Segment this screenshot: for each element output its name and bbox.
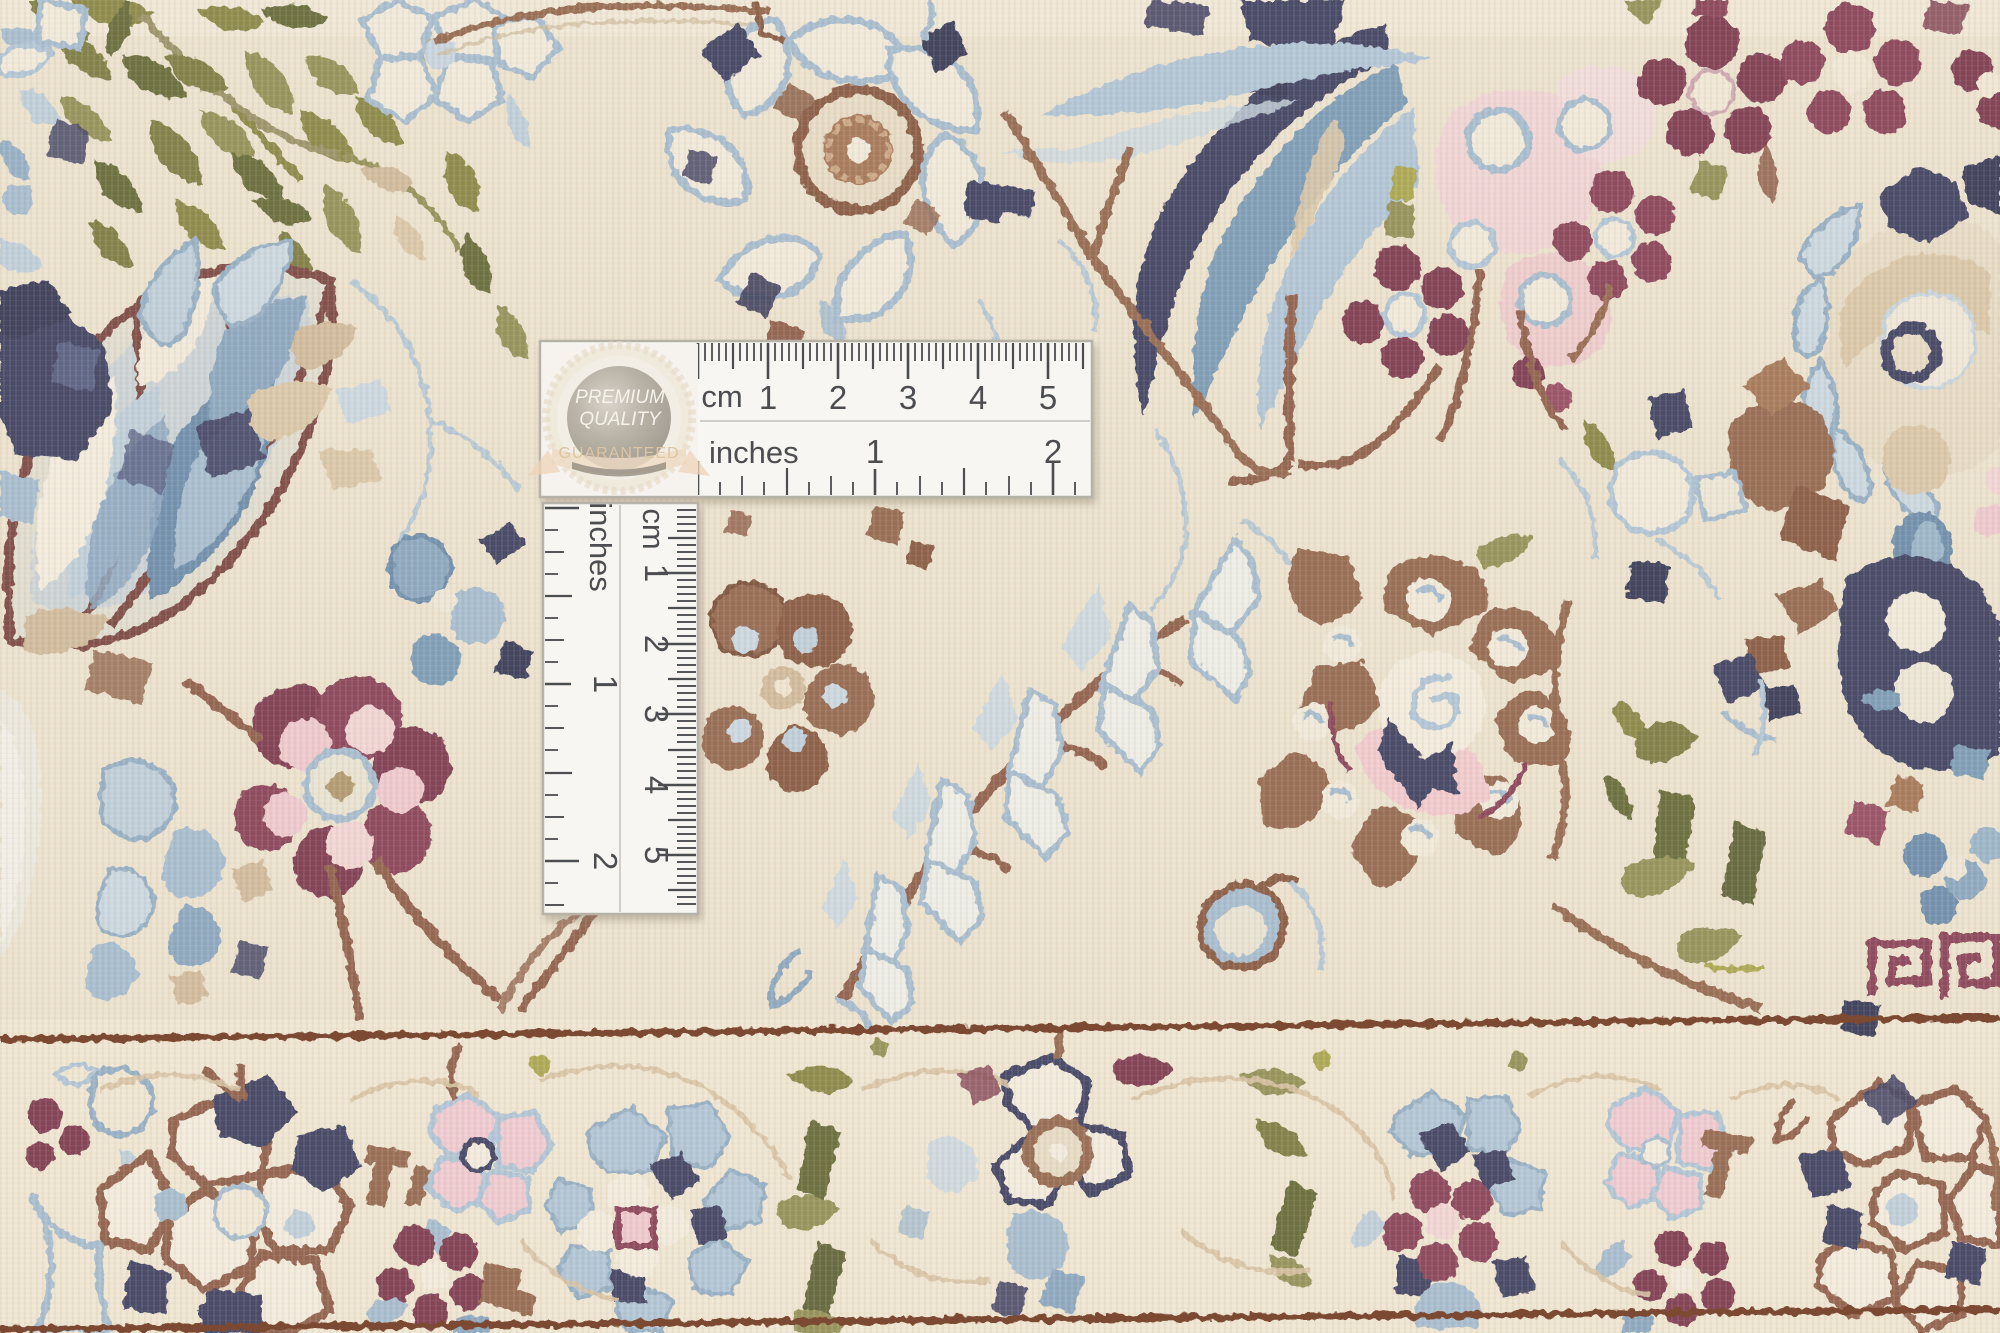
- svg-text:1: 1: [866, 433, 884, 470]
- svg-text:inches: inches: [709, 435, 799, 470]
- svg-text:2: 2: [638, 635, 675, 653]
- svg-text:1: 1: [759, 379, 777, 416]
- svg-text:cm: cm: [636, 508, 671, 549]
- svg-text:3: 3: [899, 379, 917, 416]
- svg-text:PREMIUM: PREMIUM: [575, 387, 665, 408]
- svg-text:QUALITY: QUALITY: [579, 409, 662, 430]
- svg-text:2: 2: [829, 379, 847, 416]
- svg-text:1: 1: [638, 564, 675, 582]
- svg-text:1: 1: [587, 675, 624, 693]
- svg-text:cm: cm: [701, 379, 742, 414]
- svg-text:4: 4: [638, 776, 675, 794]
- svg-text:inches: inches: [583, 502, 618, 592]
- svg-text:5: 5: [1039, 379, 1057, 416]
- svg-text:GUARANTEED: GUARANTEED: [558, 445, 679, 462]
- svg-text:2: 2: [587, 852, 624, 870]
- svg-text:3: 3: [638, 705, 675, 723]
- svg-text:5: 5: [638, 846, 675, 864]
- svg-text:4: 4: [969, 379, 987, 416]
